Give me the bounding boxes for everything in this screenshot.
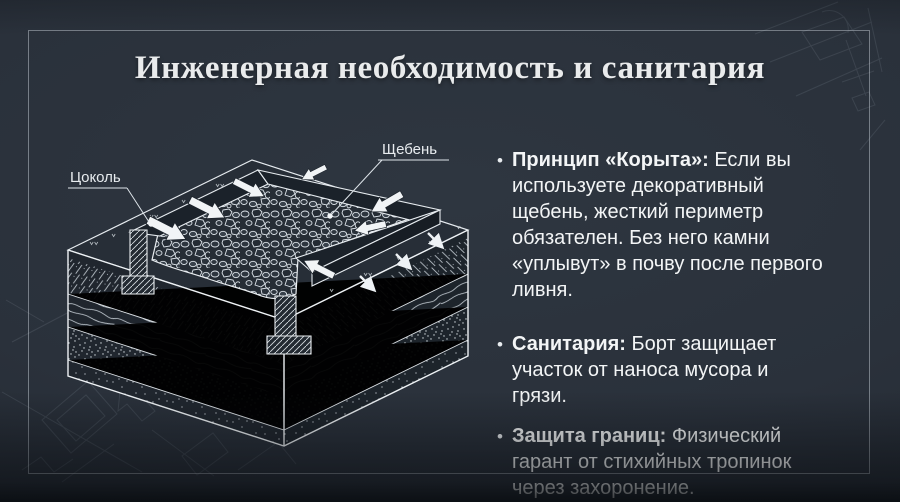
bullet-lead: Принцип «Корыта»:: [512, 149, 709, 171]
leader-dot-shcheben: [327, 213, 332, 218]
list-item: • Санитария: Борт защищает участок от на…: [497, 331, 827, 409]
foundation-cross-section-diagram: Цоколь Щебень: [30, 118, 490, 478]
list-item: • Защита границ: Физический гарант от ст…: [497, 423, 827, 501]
slide: Инженерная необходимость и санитария: [0, 0, 900, 502]
bullet-lead: Санитария:: [512, 333, 626, 355]
key-points-list: • Принцип «Корыта»: Если вы используете …: [497, 147, 827, 501]
leader-dot-tsokol: [148, 221, 153, 226]
page-title: Инженерная необходимость и санитария: [0, 49, 900, 89]
bullet-marker: •: [497, 332, 503, 358]
label-shcheben: Щебень: [382, 141, 437, 158]
label-tsokol: Цоколь: [70, 169, 121, 186]
bullet-marker: •: [497, 148, 503, 174]
bullet-text: Если вы используете декоративный щебень,…: [512, 149, 823, 301]
list-item: • Принцип «Корыта»: Если вы используете …: [497, 147, 827, 303]
bullet-lead: Защита границ:: [512, 425, 666, 447]
bullet-marker: •: [497, 424, 503, 450]
